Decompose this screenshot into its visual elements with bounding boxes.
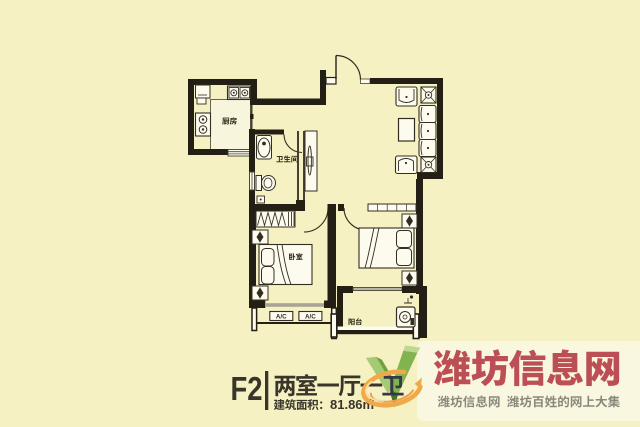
svg-text:A/C: A/C bbox=[305, 314, 316, 321]
svg-text:A/C: A/C bbox=[276, 314, 287, 321]
svg-text:F2: F2 bbox=[231, 370, 263, 407]
